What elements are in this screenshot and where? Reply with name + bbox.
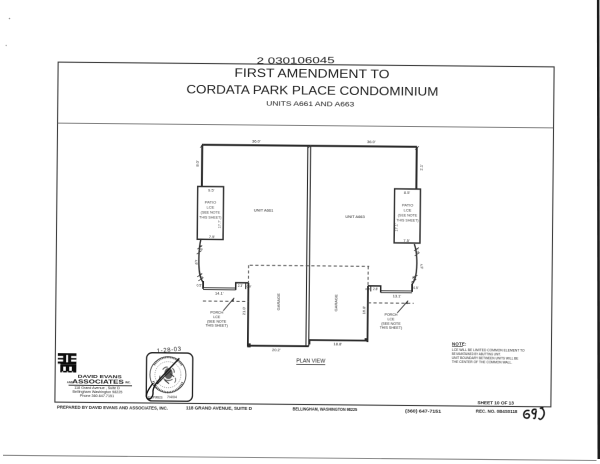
svg-text:INC.: INC.	[125, 380, 131, 384]
svg-text:UNITS A661 AND A663: UNITS A661 AND A663	[266, 100, 354, 108]
svg-text:SHEET 10 OF 13: SHEET 10 OF 13	[477, 400, 514, 405]
svg-text:EXPIRES: EXPIRES	[148, 395, 163, 399]
svg-text:Phone 360.647.7151: Phone 360.647.7151	[80, 394, 114, 398]
svg-text:9.5': 9.5'	[208, 188, 215, 193]
svg-text:7/4/04: 7/4/04	[167, 395, 177, 399]
svg-text:0.8': 0.8'	[365, 287, 370, 291]
svg-text:8.0': 8.0'	[195, 160, 200, 167]
svg-text:2.8': 2.8'	[373, 287, 378, 291]
svg-text:2.1': 2.1'	[418, 164, 423, 171]
svg-text:13.1': 13.1'	[393, 293, 402, 298]
svg-text:GARAGE: GARAGE	[333, 294, 338, 311]
svg-text:FIRST AMENDMENT TO: FIRST AMENDMENT TO	[234, 68, 389, 81]
svg-text:LCE: LCE	[387, 317, 395, 321]
svg-text:(SEE NOTE: (SEE NOTE	[201, 210, 221, 214]
svg-text:18.8': 18.8'	[333, 341, 342, 346]
svg-text:UNIT A661: UNIT A661	[254, 208, 274, 213]
svg-text:17.1': 17.1'	[395, 223, 399, 231]
svg-text:36.0': 36.0'	[367, 139, 376, 144]
svg-text:2 030106045: 2 030106045	[257, 55, 335, 66]
svg-text:0.5': 0.5'	[197, 283, 202, 287]
svg-text:THIS SHEET): THIS SHEET)	[199, 215, 221, 219]
svg-text:(SEE NOTE: (SEE NOTE	[398, 213, 418, 217]
svg-text:UNIT A663: UNIT A663	[345, 214, 365, 219]
svg-text:THIS SHEET): THIS SHEET)	[205, 324, 227, 328]
svg-text:4.9': 4.9'	[194, 259, 199, 265]
svg-text:14.1': 14.1'	[215, 291, 224, 296]
svg-text:THIS SHEET): THIS SHEET)	[396, 218, 418, 222]
svg-text:BELLINGHAM, WASHINGTON 98225: BELLINGHAM, WASHINGTON 98225	[293, 406, 358, 412]
svg-text:16.8': 16.8'	[361, 306, 366, 315]
svg-text:GARAGE: GARAGE	[276, 293, 281, 310]
svg-text:(360) 647-7151: (360) 647-7151	[405, 408, 442, 413]
svg-text:LCE: LCE	[404, 207, 412, 212]
svg-text:THE CENTER OF THE COMMON WALL.: THE CENTER OF THE COMMON WALL.	[452, 360, 513, 365]
svg-text:7.5': 7.5'	[403, 238, 410, 243]
svg-text:CORDATA PARK PLACE CONDOMINIUM: CORDATA PARK PLACE CONDOMINIUM	[186, 82, 438, 98]
svg-text:2.3': 2.3'	[238, 284, 243, 288]
svg-text:NOTE:: NOTE:	[452, 341, 467, 346]
svg-text:36.0': 36.0'	[252, 138, 261, 143]
svg-text:LCE: LCE	[207, 205, 215, 210]
svg-text:0.5': 0.5'	[413, 286, 418, 290]
svg-text:17.7': 17.7'	[217, 220, 221, 228]
svg-text:8.5': 8.5'	[404, 190, 411, 195]
svg-text:REC. NO. 0B4S0118: REC. NO. 0B4S0118	[476, 409, 518, 414]
svg-text:PLAN VIEW: PLAN VIEW	[296, 359, 326, 365]
svg-text:DAVID EVANS: DAVID EVANS	[78, 374, 122, 379]
svg-text:PREPARED BY DAVID EVANS AND AS: PREPARED BY DAVID EVANS AND ASSOCIATES, …	[57, 405, 168, 411]
svg-text:THIS SHEET): THIS SHEET)	[380, 326, 402, 330]
svg-text:LCE: LCE	[213, 315, 221, 319]
svg-text:21.0': 21.0'	[241, 306, 246, 315]
svg-text:118 GRAND AVENUE, SUITE D: 118 GRAND AVENUE, SUITE D	[186, 405, 252, 411]
svg-text:20.2': 20.2'	[272, 347, 281, 352]
svg-text:7.5': 7.5'	[209, 234, 216, 239]
